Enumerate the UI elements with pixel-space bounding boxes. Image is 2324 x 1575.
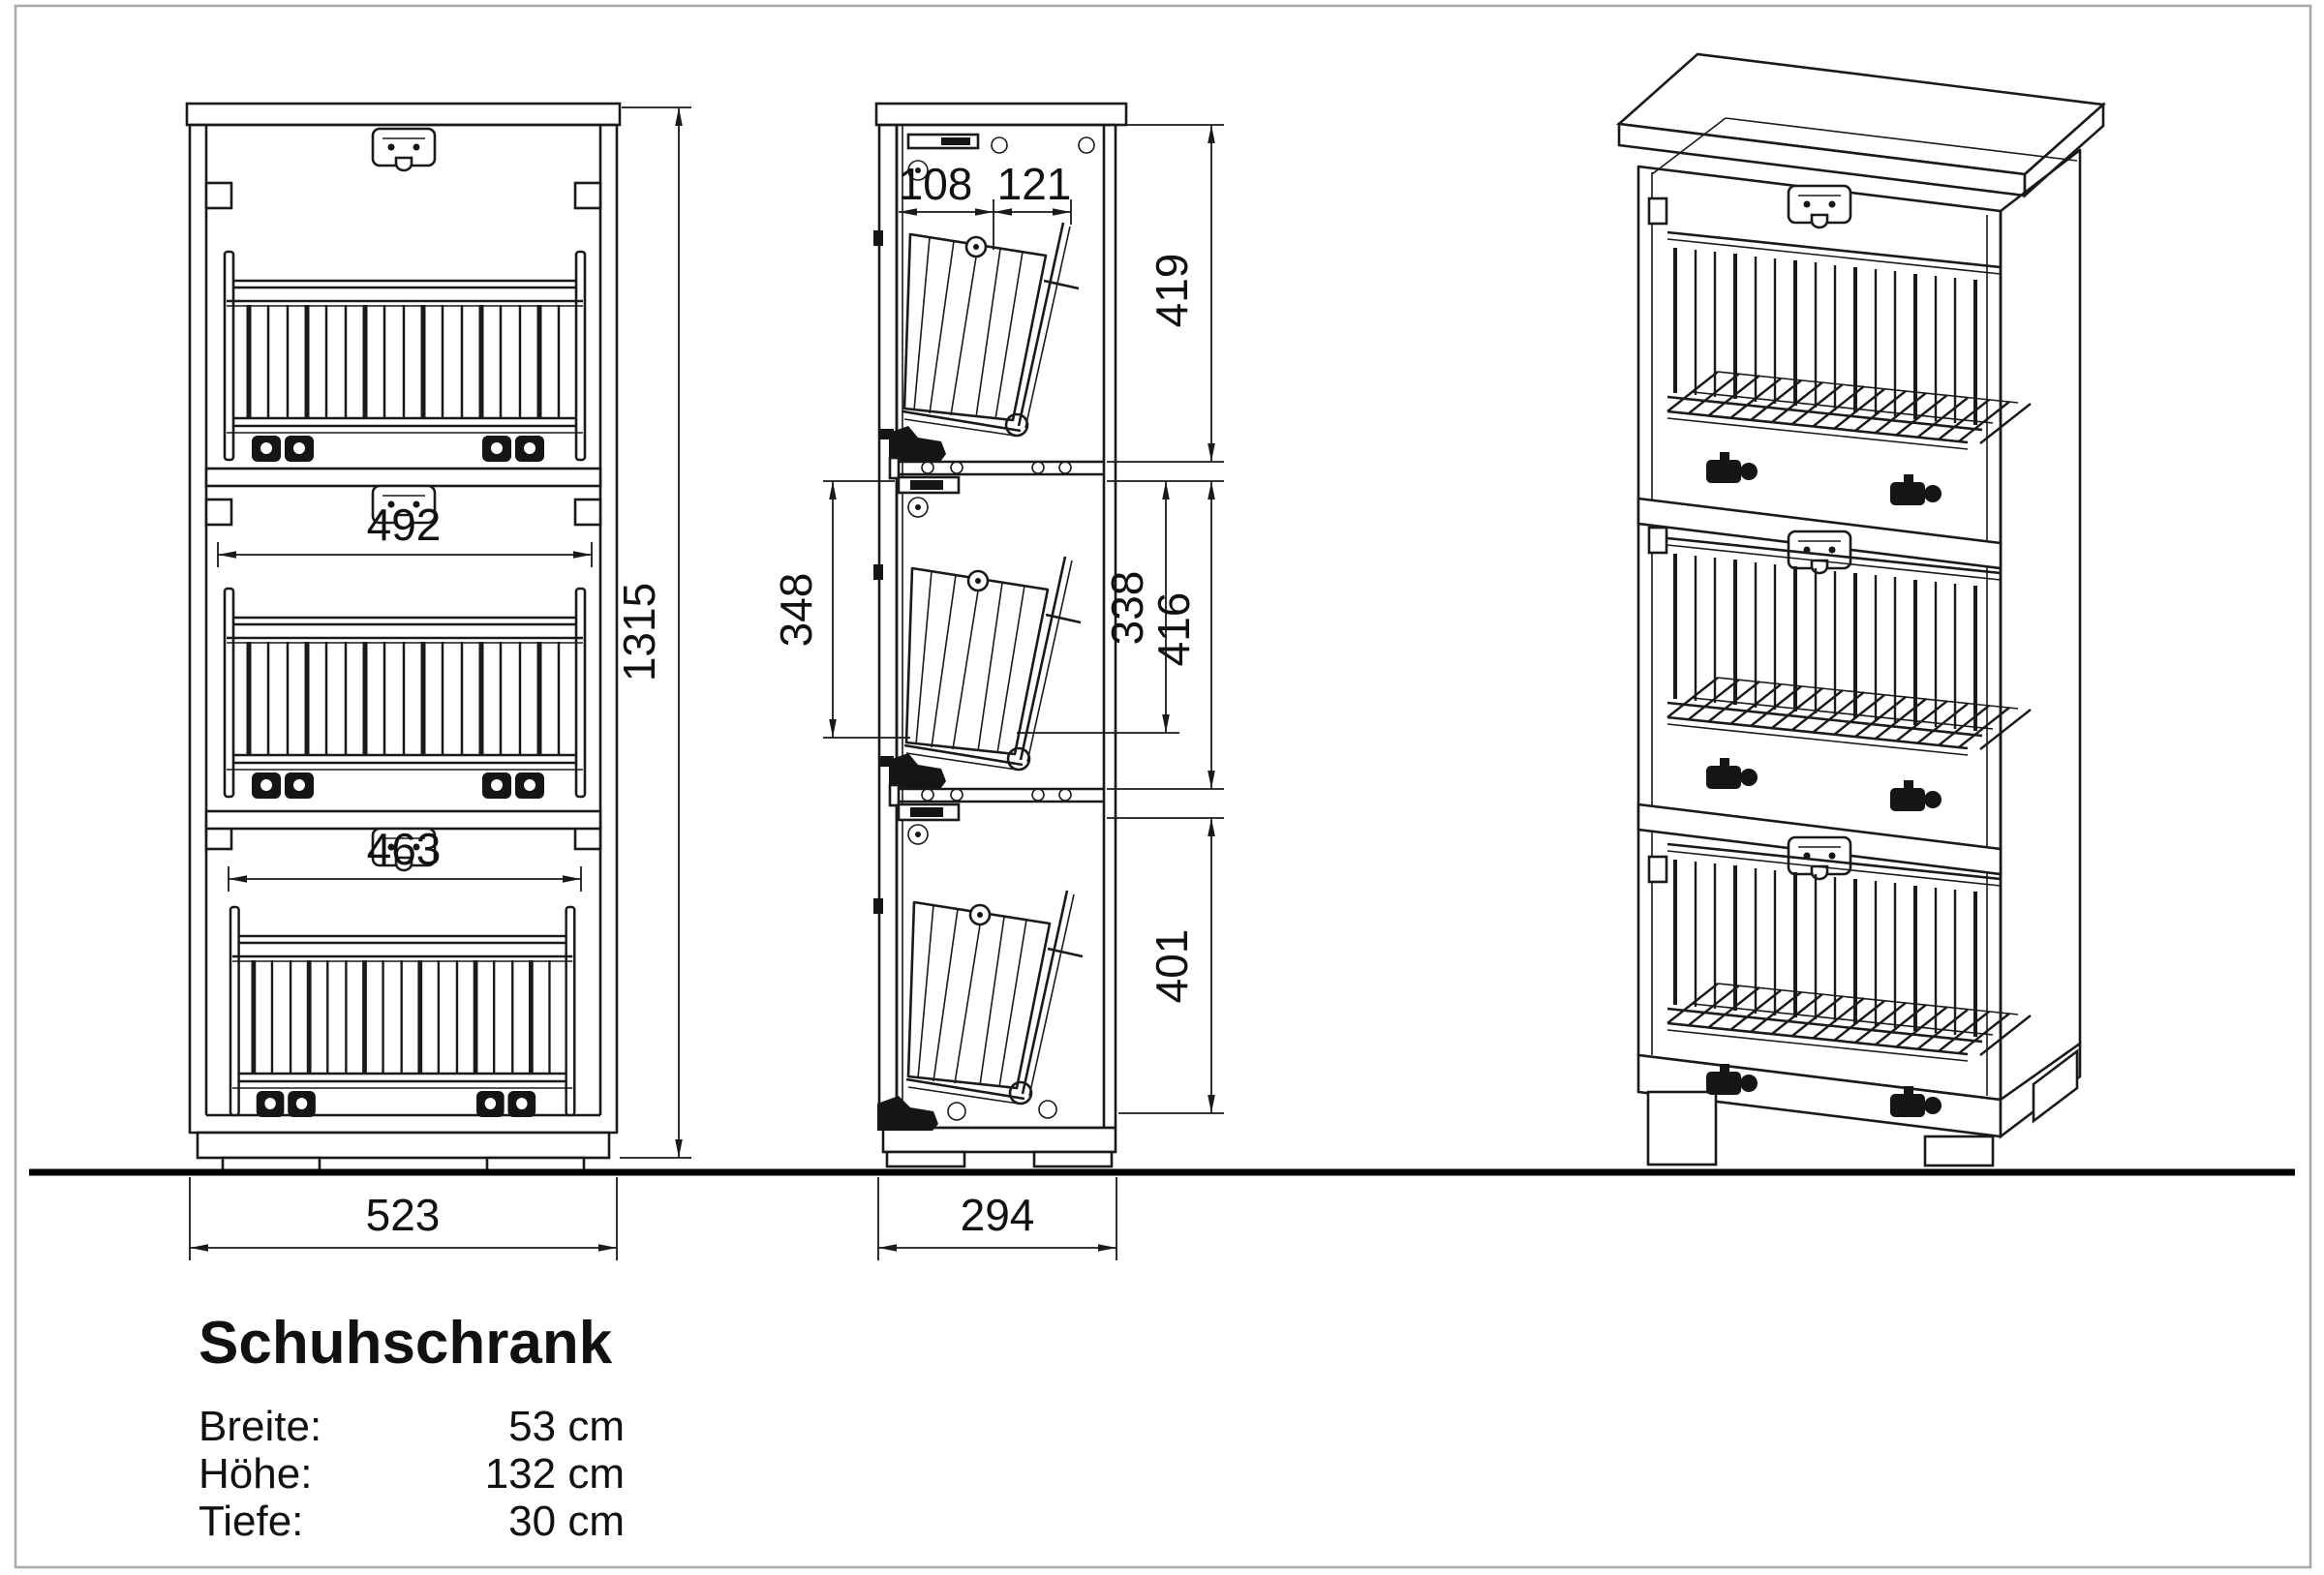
- front-basket-2: [225, 589, 585, 799]
- spec-label-tiefe: Tiefe:: [199, 1498, 303, 1545]
- side-basket-3: [906, 891, 1083, 1104]
- persp-basket-1: [1667, 232, 2031, 505]
- dim-side-sec3: 401: [1147, 929, 1197, 1004]
- side-shelf-2: [879, 753, 1104, 844]
- side-foot-back: [1034, 1152, 1112, 1166]
- persp-top-latch: [1789, 186, 1850, 227]
- side-foot-front: [887, 1152, 964, 1166]
- front-top-latch: [373, 129, 435, 170]
- side-shelf-1: [879, 426, 1104, 517]
- persp-foot-right: [1925, 1136, 1993, 1166]
- persp-foot-left: [1648, 1092, 1716, 1165]
- side-view: [873, 104, 1126, 1166]
- dim-front-width: 523: [366, 1190, 441, 1240]
- spec-value-breite: 53 cm: [508, 1403, 625, 1450]
- spec-label-hoehe: Höhe:: [199, 1450, 312, 1498]
- front-divider-1: [206, 469, 600, 486]
- technical-drawing-canvas: 492 463 523 1315 108 121 419 33: [0, 0, 2324, 1575]
- dim-front-basket-bottom: 463: [367, 824, 442, 874]
- spec-value-hoehe: 132 cm: [485, 1450, 625, 1498]
- dim-front-basket-mid: 492: [367, 500, 442, 550]
- side-basket-2: [904, 557, 1081, 770]
- dim-side-top-right: 121: [997, 159, 1072, 209]
- front-view: [187, 104, 620, 1171]
- persp-basket-3: [1667, 844, 2031, 1117]
- front-basket-3: [230, 907, 574, 1117]
- perspective-view: [1619, 54, 2103, 1166]
- front-basket-1: [225, 252, 585, 462]
- front-plinth: [198, 1133, 609, 1158]
- persp-basket-2: [1667, 538, 2031, 811]
- dim-front-height: 1315: [614, 583, 664, 681]
- side-basket-1: [902, 223, 1079, 436]
- dim-side-top-left: 108: [899, 159, 973, 209]
- drawing-title: Schuhschrank: [199, 1310, 613, 1377]
- side-top-panel: [876, 104, 1126, 125]
- title-block: Schuhschrank Breite: 53 cm Höhe: 132 cm …: [199, 1310, 625, 1545]
- dim-side-basket2-left: 348: [771, 573, 821, 648]
- dim-side-depth: 294: [961, 1190, 1035, 1240]
- spec-value-tiefe: 30 cm: [508, 1498, 625, 1545]
- side-door-panel: [879, 125, 897, 1112]
- drawing-page: 492 463 523 1315 108 121 419 33: [0, 0, 2324, 1575]
- front-top-panel: [187, 104, 620, 125]
- spec-label-breite: Breite:: [199, 1403, 321, 1450]
- dim-side-sec1: 419: [1147, 254, 1197, 328]
- dim-side-sec2: 416: [1148, 592, 1199, 667]
- side-plinth: [883, 1128, 1116, 1152]
- dim-side-basket2: 338: [1102, 571, 1152, 646]
